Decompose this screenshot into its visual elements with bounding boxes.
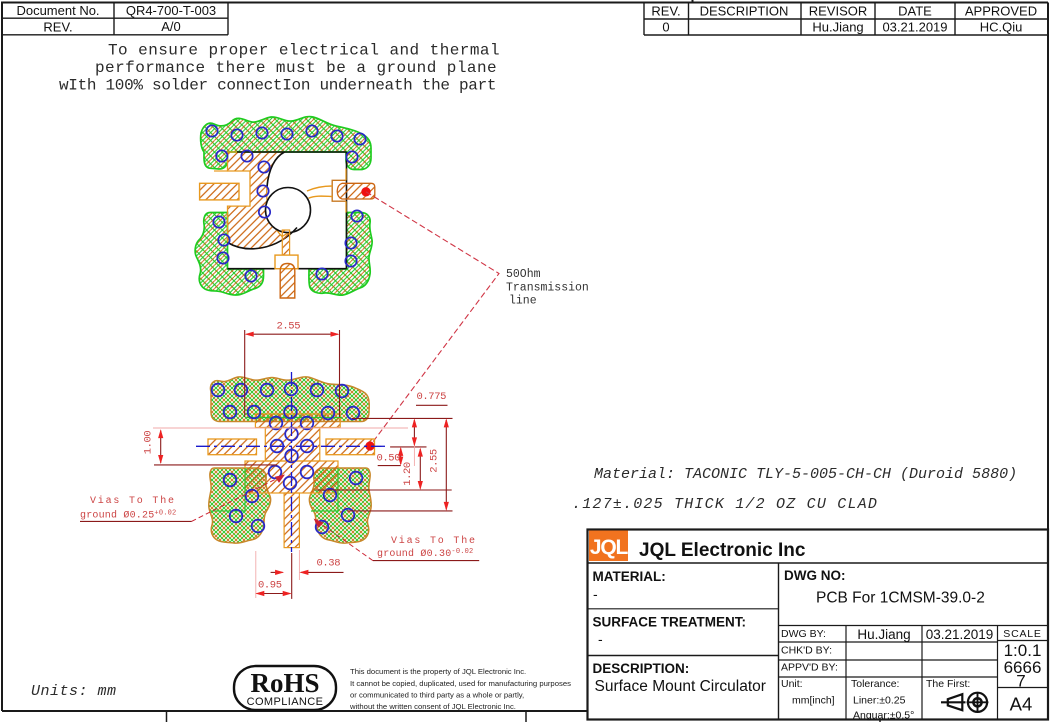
svg-text:A/0: A/0 — [161, 19, 181, 34]
svg-text:DESCRIPTION:: DESCRIPTION: — [593, 661, 690, 676]
svg-text:2.55: 2.55 — [429, 449, 441, 473]
svg-text:Tolerance:: Tolerance: — [851, 678, 899, 690]
svg-text:.127±.025 THICK 1/2 OZ CU CLAD: .127±.025 THICK 1/2 OZ CU CLAD — [572, 496, 878, 513]
svg-text:JQL Electronic Inc: JQL Electronic Inc — [639, 540, 806, 561]
svg-text:COMPLIANCE: COMPLIANCE — [247, 696, 324, 708]
svg-text:0.775: 0.775 — [417, 391, 447, 403]
svg-text:APPROVED: APPROVED — [965, 4, 1037, 19]
svg-text:03.21.2019: 03.21.2019 — [926, 627, 994, 642]
svg-text:7: 7 — [1016, 672, 1025, 691]
svg-text:wIth 100% solder connectIon un: wIth 100% solder connectIon underneath t… — [59, 77, 496, 95]
svg-text:JQL: JQL — [590, 536, 629, 559]
svg-text:Document No.: Document No. — [16, 3, 99, 18]
svg-text:1.20: 1.20 — [402, 462, 414, 486]
svg-text:Surface Mount Circulator: Surface Mount Circulator — [595, 678, 766, 695]
svg-text:Vias To The: Vias To The — [391, 535, 477, 547]
svg-text:DWG BY:: DWG BY: — [781, 628, 826, 640]
svg-text:Units: mm: Units: mm — [31, 683, 117, 700]
svg-text:Vias To The: Vias To The — [90, 495, 176, 507]
svg-text:DATE: DATE — [898, 4, 932, 19]
svg-text:03.21.2019: 03.21.2019 — [882, 20, 947, 35]
svg-text:The First:: The First: — [926, 678, 970, 690]
svg-text:0.38: 0.38 — [317, 558, 341, 570]
svg-text:2.55: 2.55 — [277, 321, 301, 333]
svg-text:Hu.Jiang: Hu.Jiang — [812, 20, 863, 35]
svg-text:HC.Qiu: HC.Qiu — [980, 20, 1023, 35]
svg-text:without the written consent of: without the written consent of JQL Elect… — [349, 702, 516, 711]
svg-text:PCB For 1CMSM-39.0-2: PCB For 1CMSM-39.0-2 — [816, 590, 985, 607]
svg-text:performance there must be a gr: performance there must be a ground plane — [95, 59, 497, 77]
svg-text:Liner:±0.25: Liner:±0.25 — [853, 695, 906, 707]
svg-text:1.00: 1.00 — [143, 431, 155, 455]
svg-text:Material: TACONIC TLY-5-005-CH: Material: TACONIC TLY-5-005-CH-CH (Duroi… — [594, 466, 1017, 483]
svg-text:REVISOR: REVISOR — [809, 4, 868, 19]
svg-text:-: - — [593, 586, 598, 602]
svg-text:CHK'D BY:: CHK'D BY: — [781, 645, 832, 657]
svg-text:ground Ø0.30-0.02: ground Ø0.30-0.02 — [377, 548, 473, 560]
svg-text:0.95: 0.95 — [258, 580, 282, 592]
svg-text:REV.: REV. — [43, 19, 72, 34]
svg-text:Hu.Jiang: Hu.Jiang — [857, 627, 910, 642]
svg-text:QR4-700-T-003: QR4-700-T-003 — [126, 3, 216, 18]
svg-text:DESCRIPTION: DESCRIPTION — [700, 4, 789, 19]
svg-text:50Ohm: 50Ohm — [506, 268, 541, 281]
svg-text:DWG NO:: DWG NO: — [784, 568, 846, 583]
svg-text:RoHS: RoHS — [250, 668, 319, 698]
svg-text:Anguar:±0.5°: Anguar:±0.5° — [853, 710, 914, 722]
svg-text:Unit:: Unit: — [781, 678, 803, 690]
svg-text:0: 0 — [662, 20, 669, 35]
svg-text:SCALE: SCALE — [1003, 628, 1041, 640]
svg-text:line: line — [509, 295, 537, 308]
svg-text:SURFACE TREATMENT:: SURFACE TREATMENT: — [593, 615, 747, 630]
svg-text:mm[inch]: mm[inch] — [792, 695, 835, 707]
svg-text:-: - — [598, 631, 603, 647]
svg-text:0.50: 0.50 — [377, 453, 401, 465]
svg-text:MATERIAL:: MATERIAL: — [593, 569, 666, 584]
svg-text:or communicated to third party: or communicated to third party as a whol… — [350, 691, 524, 700]
svg-text:Transmission: Transmission — [506, 282, 589, 295]
svg-text:This document is the property: This document is the property of JQL Ele… — [350, 667, 526, 676]
svg-text:APPV'D BY:: APPV'D BY: — [781, 662, 838, 674]
svg-text:ground Ø0.25+0.02: ground Ø0.25+0.02 — [80, 510, 176, 522]
svg-text:REV.: REV. — [651, 4, 680, 19]
svg-text:It cannot be copied, duplicate: It cannot be copied, duplicated, used fo… — [350, 679, 571, 688]
svg-text:A4: A4 — [1010, 694, 1033, 715]
svg-text:To ensure proper electrical an: To ensure proper electrical and thermal — [108, 42, 500, 60]
